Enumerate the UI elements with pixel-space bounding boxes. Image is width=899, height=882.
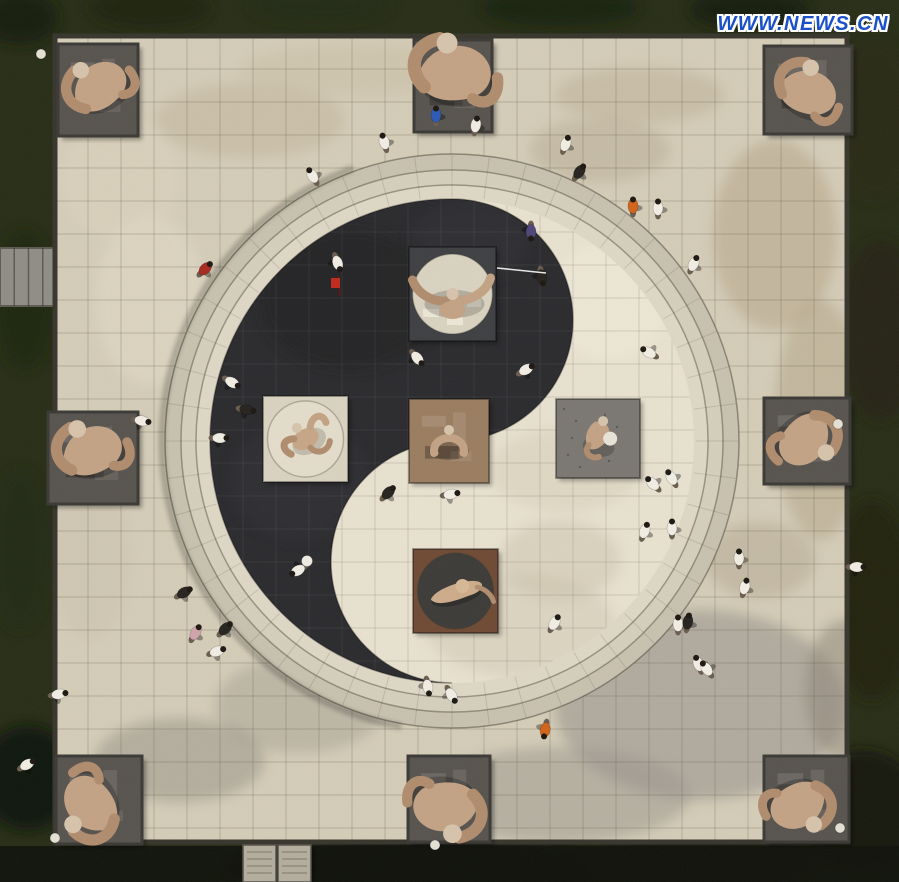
- plaza-scene-svg: [0, 0, 899, 882]
- aerial-photo: WWW.NEWS.CN: [0, 0, 899, 882]
- photo-grain: [0, 0, 899, 882]
- news-watermark: WWW.NEWS.CN: [717, 13, 889, 36]
